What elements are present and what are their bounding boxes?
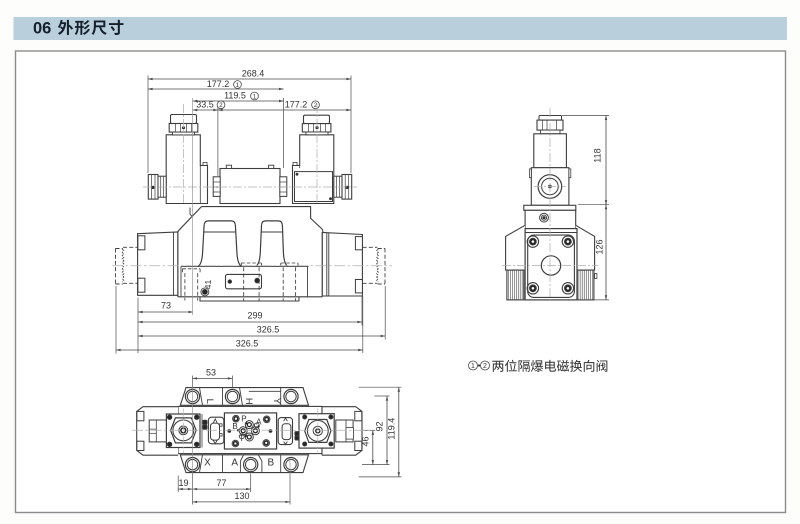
svg-text:1: 1 bbox=[236, 82, 240, 89]
svg-text:1: 1 bbox=[253, 93, 257, 100]
svg-text:33.5: 33.5 bbox=[196, 100, 214, 110]
svg-text:A: A bbox=[256, 417, 262, 426]
svg-text:B: B bbox=[232, 422, 237, 431]
svg-text:2: 2 bbox=[483, 363, 487, 370]
svg-text:326.5: 326.5 bbox=[236, 339, 259, 349]
svg-text:73: 73 bbox=[161, 301, 171, 311]
svg-text:H: H bbox=[243, 398, 254, 405]
svg-text:41: 41 bbox=[203, 280, 213, 290]
svg-text:19: 19 bbox=[178, 478, 188, 488]
svg-text:326.5: 326.5 bbox=[257, 325, 280, 335]
svg-text:119.5: 119.5 bbox=[224, 91, 246, 101]
svg-text:119.4: 119.4 bbox=[387, 418, 397, 440]
svg-text:77: 77 bbox=[216, 478, 226, 488]
svg-text:118: 118 bbox=[593, 148, 603, 162]
svg-text:2: 2 bbox=[219, 102, 223, 109]
svg-text:126: 126 bbox=[595, 239, 605, 254]
svg-text:X: X bbox=[204, 458, 211, 469]
svg-text:53: 53 bbox=[206, 367, 216, 377]
svg-text:06: 06 bbox=[33, 20, 51, 38]
svg-text:A: A bbox=[231, 458, 238, 469]
svg-text:Y: Y bbox=[271, 398, 282, 405]
svg-text:177.2: 177.2 bbox=[207, 79, 230, 89]
svg-text:92: 92 bbox=[375, 421, 385, 431]
svg-text:177.2: 177.2 bbox=[285, 100, 308, 110]
svg-text:268.4: 268.4 bbox=[242, 69, 265, 79]
svg-text:130: 130 bbox=[234, 491, 249, 501]
svg-text:46: 46 bbox=[360, 436, 370, 446]
svg-text:299: 299 bbox=[247, 311, 262, 321]
svg-text:L: L bbox=[204, 399, 215, 404]
svg-text:B: B bbox=[267, 458, 274, 469]
svg-text:1: 1 bbox=[471, 363, 475, 370]
svg-text:T: T bbox=[239, 434, 244, 443]
